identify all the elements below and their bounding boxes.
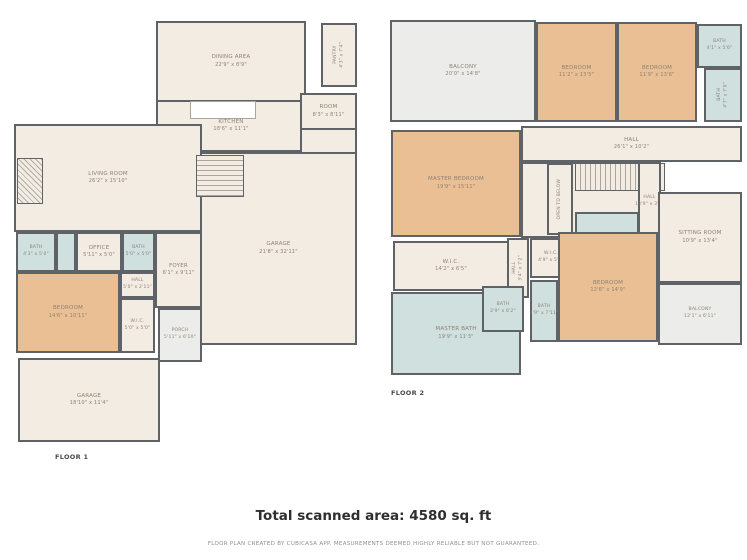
room-dimensions: 14'6" x 10'11" bbox=[49, 313, 88, 321]
room-dimensions: 14'2" x 6'5" bbox=[435, 266, 467, 274]
room-name: BEDROOM bbox=[639, 64, 674, 73]
room-label: GARAGE18'10" x 11'4" bbox=[70, 392, 109, 408]
island bbox=[190, 101, 256, 119]
room-pantry: PANTRY4'3" x 7'4" bbox=[321, 23, 357, 87]
room-name: PORCH bbox=[164, 328, 196, 335]
room-label: SITTING ROOM10'9" x 13'4" bbox=[678, 229, 721, 245]
room-name: FOYER bbox=[163, 262, 195, 271]
room-name: KITCHEN bbox=[213, 118, 248, 127]
room-label: BEDROOM14'6" x 10'11" bbox=[49, 304, 88, 320]
room-label: BALCONY20'0" x 14'8" bbox=[445, 63, 480, 79]
room-name: BEDROOM bbox=[559, 64, 594, 73]
room-label: BALCONY12'1" x 6'11" bbox=[684, 307, 716, 321]
room-label: BATH2'9" x 6'2" bbox=[490, 302, 516, 316]
room-name: W.I.C. bbox=[435, 258, 467, 267]
room-dimensions: 18'6" x 11'1" bbox=[213, 126, 248, 134]
room-name: W.I.C. bbox=[125, 319, 151, 326]
floor bbox=[300, 128, 357, 154]
room-label: BATH4'1" x 5'6" bbox=[707, 39, 733, 53]
room-label: HALL26'1" x 10'2" bbox=[614, 136, 649, 152]
room-label: BATH5'0" x 5'0" bbox=[126, 245, 152, 259]
room-dimensions: 12'6" x 14'9" bbox=[590, 287, 625, 295]
room-bath: BATH2'9" x 6'2" bbox=[482, 286, 524, 332]
room-name: HALL bbox=[512, 255, 518, 281]
room-dimensions: 3'4" x 7'2" bbox=[518, 255, 524, 281]
room-label: MASTER BATH19'9" x 11'3" bbox=[435, 325, 476, 341]
room-name: HALL bbox=[614, 136, 649, 145]
room-dimensions: 5'11" x 5'0" bbox=[83, 252, 115, 260]
room-name: GARAGE bbox=[70, 392, 109, 401]
room-label: PANTRY4'3" x 7'4" bbox=[333, 42, 346, 68]
room-dimensions: 8'3" x 8'11" bbox=[313, 112, 345, 120]
room-dimensions: 20'0" x 14'8" bbox=[445, 71, 480, 79]
room-bath: BATH3'9" x 7'11" bbox=[530, 280, 558, 342]
room-dimensions: 11'9" x 13'6" bbox=[639, 72, 674, 80]
room-label: HALL3'4" x 7'2" bbox=[512, 255, 525, 281]
room-name: BATH bbox=[23, 245, 49, 252]
room-name: BATH bbox=[126, 245, 152, 252]
room-label: GARAGE21'8" x 32'11" bbox=[259, 240, 298, 256]
room-label: BEDROOM11'2" x 13'5" bbox=[559, 64, 594, 80]
room-bedroom: BEDROOM11'9" x 13'6" bbox=[617, 22, 697, 122]
room-dimensions: 10'9" x 13'4" bbox=[678, 238, 721, 246]
room-label: BATH4'7" x 7'9" bbox=[717, 82, 730, 108]
room-bedroom: BEDROOM11'2" x 13'5" bbox=[536, 22, 617, 122]
room-name: MASTER BEDROOM bbox=[428, 175, 484, 184]
room-porch: PORCH5'11" x 6'10" bbox=[158, 308, 202, 362]
room-name: SITTING ROOM bbox=[678, 229, 721, 238]
room-bedroom: BEDROOM12'6" x 14'9" bbox=[558, 232, 658, 342]
bath bbox=[56, 232, 76, 272]
room-bath: BATH4'7" x 7'9" bbox=[704, 68, 742, 122]
room-dimensions: 5'11" x 6'10" bbox=[164, 335, 196, 342]
room-dimensions: 18'10" x 11'4" bbox=[70, 400, 109, 408]
room-label: LIVING ROOM26'2" x 15'10" bbox=[88, 170, 128, 186]
room-dimensions: 11'2" x 13'5" bbox=[559, 72, 594, 80]
room-bath: BATH5'0" x 5'0" bbox=[122, 232, 155, 272]
room-dimensions: 19'9" x 15'11" bbox=[428, 184, 484, 192]
room-office: OFFICE5'11" x 5'0" bbox=[76, 232, 122, 272]
total-scanned-area: Total scanned area: 4580 sq. ft bbox=[0, 508, 747, 524]
room-foyer: FOYER6'1" x 9'11" bbox=[155, 232, 202, 308]
room-name: BATH bbox=[490, 302, 516, 309]
room-label: W.I.C.5'0" x 5'0" bbox=[125, 319, 151, 333]
room-dimensions: 2'9" x 6'2" bbox=[490, 309, 516, 316]
room-dimensions: 26'1" x 10'2" bbox=[614, 144, 649, 152]
floor-2-label: FLOOR 2 bbox=[391, 389, 424, 397]
room-dimensions: 26'2" x 15'10" bbox=[88, 178, 128, 186]
room-name: MASTER BATH bbox=[435, 325, 476, 334]
room-label: BATH3'9" x 7'11" bbox=[530, 304, 559, 318]
room-name: OFFICE bbox=[83, 244, 115, 253]
room-label: BEDROOM12'6" x 14'9" bbox=[590, 279, 625, 295]
room-label: OPEN TO BELOW bbox=[557, 179, 563, 220]
room-label: BEDROOM11'9" x 13'6" bbox=[639, 64, 674, 80]
room-label: FOYER6'1" x 9'11" bbox=[163, 262, 195, 278]
floor-1-label: FLOOR 1 bbox=[55, 453, 88, 461]
room-name: DINING AREA bbox=[212, 53, 251, 62]
room-label: MASTER BEDROOM19'9" x 15'11" bbox=[428, 175, 484, 191]
room-label: W.I.C.14'2" x 6'5" bbox=[435, 258, 467, 274]
room-bath: BATH4'1" x 5'6" bbox=[697, 24, 742, 68]
room-bath: BATH4'3" x 5'0" bbox=[16, 232, 56, 272]
room-w-i-c: W.I.C.14'2" x 6'5" bbox=[393, 241, 509, 291]
room-dining-area: DINING AREA22'9" x 8'9" bbox=[156, 21, 306, 102]
room-name: HALL bbox=[123, 278, 152, 285]
room-name: BATH bbox=[530, 304, 559, 311]
room-label: BATH4'3" x 5'0" bbox=[23, 245, 49, 259]
room-label: HALL5'0" x 2'11" bbox=[123, 278, 152, 292]
room-dimensions: 5'0" x 5'0" bbox=[126, 252, 152, 259]
room-w-i-c: W.I.C.5'0" x 5'0" bbox=[120, 298, 155, 353]
room-name: BEDROOM bbox=[49, 304, 88, 313]
room-room: ROOM8'3" x 8'11" bbox=[300, 93, 357, 130]
room-name: ROOM bbox=[313, 103, 345, 112]
floorplan-canvas: DINING AREA22'9" x 8'9"KITCHEN18'6" x 11… bbox=[0, 0, 747, 560]
room-name: BATH bbox=[707, 39, 733, 46]
room-label: DINING AREA22'9" x 8'9" bbox=[212, 53, 251, 69]
room-dimensions: 4'7" x 7'9" bbox=[723, 82, 729, 108]
room-dimensions: 21'8" x 32'11" bbox=[259, 249, 298, 257]
room-label: ROOM8'3" x 8'11" bbox=[313, 103, 345, 119]
room-hall: HALL26'1" x 10'2" bbox=[521, 126, 742, 162]
room-name: LIVING ROOM bbox=[88, 170, 128, 179]
room-name: BALCONY bbox=[684, 307, 716, 314]
room-name: OPEN TO BELOW bbox=[557, 179, 563, 220]
room-name: BEDROOM bbox=[590, 279, 625, 288]
room-bedroom: BEDROOM14'6" x 10'11" bbox=[16, 272, 120, 353]
room-label: PORCH5'11" x 6'10" bbox=[164, 328, 196, 342]
room-balcony: BALCONY20'0" x 14'8" bbox=[390, 20, 536, 122]
room-master-bedroom: MASTER BEDROOM19'9" x 15'11" bbox=[391, 130, 521, 237]
room-garage: GARAGE18'10" x 11'4" bbox=[18, 358, 160, 442]
disclaimer-text: FLOOR PLAN CREATED BY CUBICASA APP. MEAS… bbox=[0, 541, 747, 547]
room-name: GARAGE bbox=[259, 240, 298, 249]
room-hall: HALL5'0" x 2'11" bbox=[120, 272, 155, 298]
room-dimensions: 3'9" x 7'11" bbox=[530, 311, 559, 318]
room-balcony: BALCONY12'1" x 6'11" bbox=[658, 283, 742, 345]
room-dimensions: 6'1" x 9'11" bbox=[163, 270, 195, 278]
room-name: BATH bbox=[717, 82, 723, 108]
hatch bbox=[17, 158, 43, 204]
room-label: KITCHEN18'6" x 11'1" bbox=[213, 118, 248, 134]
room-label: OFFICE5'11" x 5'0" bbox=[83, 244, 115, 260]
room-dimensions: 5'0" x 2'11" bbox=[123, 285, 152, 292]
room-dimensions: 4'1" x 5'6" bbox=[707, 46, 733, 53]
room-dimensions: 19'9" x 11'3" bbox=[435, 334, 476, 342]
room-name: PANTRY bbox=[333, 42, 339, 68]
room-dimensions: 22'9" x 8'9" bbox=[212, 62, 251, 70]
room-dimensions: 4'3" x 7'4" bbox=[339, 42, 345, 68]
room-dimensions: 5'0" x 5'0" bbox=[125, 326, 151, 333]
stairs-v bbox=[196, 155, 244, 197]
room-open-to-below: OPEN TO BELOW bbox=[547, 163, 573, 235]
room-sitting-room: SITTING ROOM10'9" x 13'4" bbox=[658, 192, 742, 283]
room-dimensions: 4'3" x 5'0" bbox=[23, 252, 49, 259]
room-name: BALCONY bbox=[445, 63, 480, 72]
room-dimensions: 12'1" x 6'11" bbox=[684, 314, 716, 321]
